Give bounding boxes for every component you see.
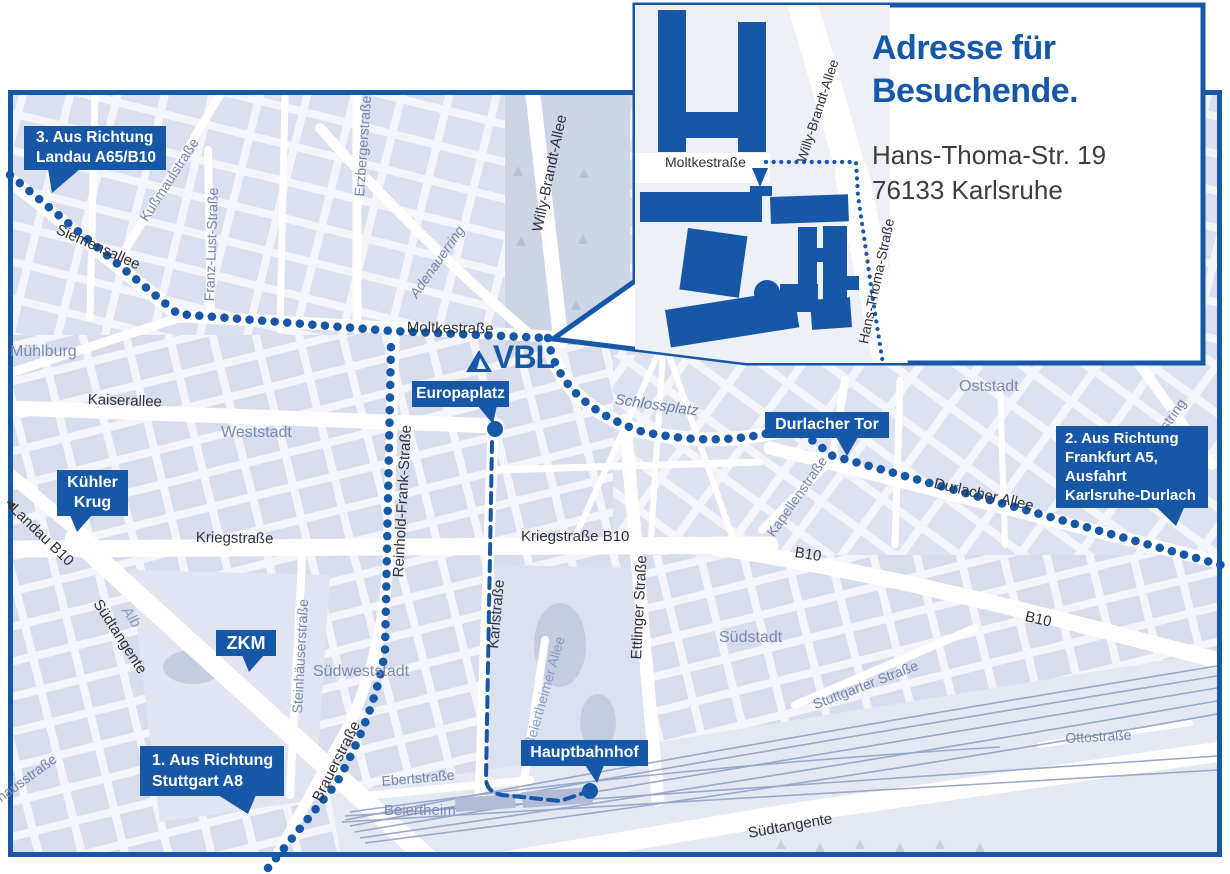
callout-frankfurt-line2: Frankfurt A5, (1065, 448, 1208, 467)
vbl-logo-text: VBL (493, 341, 554, 373)
area-label-muehlburg: Mühlburg (10, 344, 77, 361)
area-label-suedweststadt: Südweststadt (313, 664, 409, 681)
callout-zkm: ZKM (216, 630, 276, 656)
callout-frankfurt-line1: 2. Aus Richtung (1065, 429, 1208, 448)
callout-frankfurt-line3: Ausfahrt (1065, 467, 1208, 486)
street-label-ottostrasse: Ottostraße (1065, 728, 1132, 746)
callout-hauptbahnhof: Hauptbahnhof (521, 740, 648, 766)
callout-frankfurt: 2. Aus Richtung Frankfurt A5, Ausfahrt K… (1056, 426, 1208, 508)
area-label-weststadt: Weststadt (221, 425, 292, 442)
inset-address-line2: 76133 Karlsruhe (872, 173, 1106, 208)
inset-title-line1: Adresse für (872, 27, 1078, 70)
area-label-suedstadt: Südstadt (719, 630, 782, 647)
callout-hauptbahnhof-label: Hauptbahnhof (530, 744, 638, 761)
callout-landau-line2: Landau A65/B10 (36, 148, 166, 168)
street-label-moltkestrasse: Moltkestraße (407, 320, 494, 337)
europaplatz-dot (487, 421, 503, 437)
street-label-kriegstrasse-b10: Kriegstraße B10 (521, 529, 629, 545)
karlsruhe-directions-map: Siemensallee Moltkestraße Kaiserallee Kr… (0, 0, 1230, 874)
callout-zkm-label: ZKM (227, 633, 266, 653)
hauptbahnhof-dot (582, 783, 598, 799)
street-label-kriegstrasse: Kriegstraße (196, 530, 274, 547)
area-label-beiertheim: Beiertheim (384, 803, 456, 819)
inset-title: Adresse für Besuchende. (872, 27, 1078, 113)
callout-stuttgart-line2: Stuttgart A8 (152, 771, 284, 792)
callout-durlacher-tor-label: Durlacher Tor (775, 416, 879, 433)
callout-stuttgart: 1. Aus Richtung Stuttgart A8 (140, 746, 284, 796)
callout-kuehler-line1: Kühler (57, 473, 128, 493)
inset-street-label-moltkestrasse: Moltkestraße (665, 155, 746, 170)
callout-stuttgart-line1: 1. Aus Richtung (152, 750, 284, 771)
callout-frankfurt-line4: Karlsruhe-Durlach (1065, 486, 1208, 505)
inset-address: Hans-Thoma-Str. 19 76133 Karlsruhe (872, 138, 1106, 208)
callout-kuehler-krug: Kühler Krug (57, 470, 128, 516)
street-label-kaiserallee: Kaiserallee (87, 392, 162, 410)
area-label-oststadt: Oststadt (959, 379, 1019, 396)
vbl-triangle-icon (466, 349, 493, 373)
inset-title-line2: Besuchende. (872, 70, 1078, 113)
callout-kuehler-line2: Krug (57, 493, 128, 513)
callout-europaplatz: Europaplatz (412, 381, 509, 407)
callout-durlacher-tor: Durlacher Tor (765, 412, 889, 438)
inset-address-line1: Hans-Thoma-Str. 19 (872, 138, 1106, 173)
vbl-logo: VBL (466, 341, 554, 373)
callout-europaplatz-label: Europaplatz (416, 385, 505, 402)
callout-landau: 3. Aus Richtung Landau A65/B10 (24, 126, 166, 170)
callout-landau-line1: 3. Aus Richtung (36, 128, 166, 148)
